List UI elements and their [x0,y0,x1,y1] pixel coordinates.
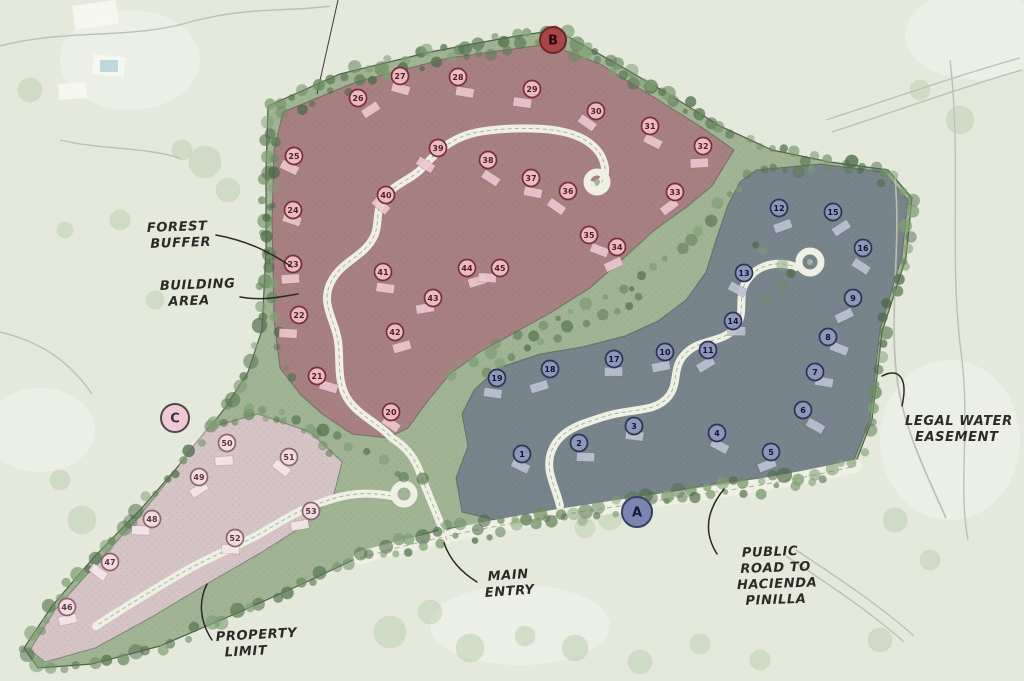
tree [531,518,542,529]
lot-number: 3 [631,422,637,431]
terrain-tree-blob [868,628,892,652]
tree [171,470,179,478]
tree [60,665,68,673]
tree [225,392,240,407]
lot-marker-39: 39 [430,140,447,157]
lot-marker-21: 21 [309,368,326,385]
lot-marker-27: 27 [392,68,409,85]
tree [649,263,657,271]
tree [471,37,484,50]
tree [383,55,391,63]
tree [158,645,169,656]
tree [763,298,771,306]
annotation-text-main-entry: MAINENTRY [483,566,536,600]
tree [232,419,239,426]
tree [246,603,255,612]
tree [788,146,799,157]
tree [739,490,747,498]
tree [288,94,295,101]
lot-number: 35 [583,231,595,240]
tree [472,524,484,536]
lot-marker-38: 38 [480,152,497,169]
tree [327,87,334,94]
lot-marker-48: 48 [144,511,161,528]
tree [756,143,763,150]
lot-number: 40 [380,191,392,200]
tree [230,603,245,618]
tree [89,552,102,565]
tree [454,518,467,531]
lot-marker-47: 47 [102,554,119,571]
lot-number: 24 [287,206,299,215]
lot-marker-30: 30 [588,103,605,120]
tree [417,473,429,485]
lot-marker-11: 11 [700,342,717,359]
tree [591,48,598,55]
tree [767,470,777,480]
lot-marker-3: 3 [626,418,643,435]
tree [758,478,765,485]
tree [262,214,270,222]
marker-b: B [540,27,566,53]
terrain-tree-blob [189,146,221,178]
terrain-tree-blob [946,106,974,134]
tree [864,424,877,437]
lot-marker-1: 1 [514,446,531,463]
tree [522,28,531,37]
lot-marker-7: 7 [807,364,824,381]
neighbor-building [58,82,87,100]
terrain-tree-blob [18,78,42,102]
tree [712,197,724,209]
annotation-line: LEGAL WATER [905,414,1013,429]
lot-marker-43: 43 [425,290,442,307]
terrain-tree-blob [57,222,73,238]
lot-marker-34: 34 [609,239,626,256]
lot-marker-24: 24 [285,202,302,219]
tree [262,415,269,422]
tree [255,301,266,312]
tree [773,483,779,489]
culdesac-island [401,491,407,497]
tree [874,365,884,375]
tree [693,226,703,236]
tree [262,247,277,262]
lot-marker-13: 13 [736,265,753,282]
tree [685,96,696,107]
tree [725,130,734,139]
lot-marker-49: 49 [191,469,208,486]
lot-number: 52 [229,534,240,543]
tree [431,57,442,68]
tree [561,320,573,332]
tree [296,84,308,96]
tree [379,454,390,465]
terrain-tree-blob [910,80,930,100]
site-plan-canvas: 2021222324252627282930313233343536373839… [0,0,1024,681]
lot-number: 6 [800,406,806,415]
lot-number: 38 [482,156,494,165]
tree [287,373,296,382]
tree [19,645,27,653]
lot-number: 42 [389,328,400,337]
tree [270,154,279,163]
tree [568,309,574,315]
lot-number: 33 [669,188,680,197]
tree [45,662,57,674]
tree [326,450,333,457]
tree [296,577,306,587]
tree [309,101,315,107]
lot-number: 27 [394,72,405,81]
tree [876,351,888,363]
tree [452,533,458,539]
terrain-tree-blob [68,506,96,534]
tree [892,286,903,297]
tree [819,475,827,483]
tree [273,593,283,603]
lot-marker-37: 37 [523,170,540,187]
tree [101,655,112,666]
terrain-tree-blob [456,634,484,662]
tree [593,512,600,519]
tree [260,230,272,242]
tree [677,492,687,502]
terrain-tree-blob [515,626,535,646]
tree [475,50,482,57]
tree [309,578,317,586]
lot-number: 34 [611,243,623,252]
tree [317,424,330,437]
lot-number: 49 [193,473,205,482]
lot-number: 5 [768,448,774,457]
lot-marker-18: 18 [542,361,559,378]
tree [776,259,788,271]
tree [363,448,370,455]
tree [220,419,228,427]
tree [822,154,832,164]
neighbor-pool [100,60,118,72]
lot-marker-51: 51 [281,449,298,466]
lot-marker-40: 40 [378,187,395,204]
tree [857,167,864,174]
lot-number: 25 [288,152,300,161]
tree [769,164,777,172]
lot-number: 36 [562,187,574,196]
lot-marker-17: 17 [606,351,623,368]
tree [612,495,621,504]
tree [619,285,628,294]
tree [447,52,458,63]
tree [861,448,869,456]
tree [90,657,102,669]
tree [464,54,470,60]
tree [880,326,893,339]
lot-number: 18 [544,365,556,374]
lot-marker-6: 6 [795,402,812,419]
tree [614,308,621,315]
tree [490,338,501,349]
tree [271,137,281,147]
tree [276,106,289,119]
house-footprint [690,158,708,168]
annotation-line: LIMIT [224,643,268,660]
tree [899,219,913,233]
lot-number: 41 [377,268,389,277]
lot-marker-33: 33 [667,184,684,201]
tree [510,518,522,530]
tree [752,242,759,249]
lot-marker-25: 25 [286,148,303,165]
tree [779,282,787,290]
marker-c: C [161,404,189,432]
tree [380,551,387,558]
tree [141,491,151,501]
tree [729,476,738,485]
tree [24,626,39,641]
tree [420,44,432,56]
terrain-tree-blob [216,178,240,202]
lot-number: 53 [305,507,316,516]
lot-marker-4: 4 [709,425,726,442]
tree [514,37,526,49]
lot-number: 14 [727,317,739,326]
tree [267,278,278,289]
tree [777,468,792,483]
lot-number: 19 [491,374,503,383]
tree [273,416,280,423]
lot-number: 11 [702,346,714,355]
tree [365,65,373,73]
tree [472,537,479,544]
tree [879,339,887,347]
tree [597,309,608,320]
tree [291,415,301,425]
terrain-tree-blob [628,650,652,674]
lot-marker-22: 22 [291,307,308,324]
lot-marker-5: 5 [763,444,780,461]
lot-marker-45: 45 [492,260,509,277]
tree [258,196,266,204]
lot-marker-20: 20 [383,404,400,421]
tree [313,79,325,91]
tree [667,94,675,102]
tree [502,46,512,56]
tree [629,286,635,292]
tree [637,271,646,280]
tree [398,472,409,483]
tree [494,358,505,369]
annotation-line: HACIENDA [737,575,818,593]
tree [689,492,700,503]
lot-marker-41: 41 [375,264,392,281]
house-footprint [513,97,532,108]
tree [577,516,587,526]
tree [524,344,531,351]
tree [627,77,640,90]
lot-number: 37 [525,174,536,183]
tree [354,547,367,560]
tree [268,182,279,193]
tree [808,165,816,173]
lot-number: 30 [590,107,602,116]
tree [696,113,704,121]
lot-marker-50: 50 [219,435,236,452]
tree [404,548,413,557]
marker-c-label: C [170,412,180,427]
tree [769,145,776,152]
tree [340,73,348,81]
lot-number: 17 [608,355,619,364]
lot-marker-35: 35 [581,227,598,244]
tree [877,179,885,187]
tree [43,617,50,624]
annotation-line: MAIN [487,567,529,585]
lot-marker-14: 14 [725,313,742,330]
tree [847,458,857,468]
tree [837,459,845,467]
lot-number: 1 [519,450,525,459]
lot-marker-8: 8 [820,329,837,346]
lot-number: 8 [825,333,831,342]
tree [553,334,562,343]
lot-number: 2 [576,439,582,448]
tree [625,302,633,310]
tree [442,520,453,531]
tree [243,354,258,369]
tree [379,540,393,554]
tree [234,380,247,393]
terrain-tree-blob [690,634,710,654]
tree [205,615,219,629]
tree [787,269,796,278]
annotation-text-forest-buffer: FORESTBUFFER [147,219,212,252]
tree [325,75,335,85]
tree [742,170,751,179]
tree [239,372,248,381]
lot-number: 29 [526,85,538,94]
lot-number: 45 [494,264,506,273]
lot-number: 43 [427,294,438,303]
terrain-tree-blob [750,650,770,670]
tree [263,262,274,273]
marker-a-label: A [632,506,642,521]
annotation-line: BUFFER [150,235,211,252]
lot-marker-31: 31 [642,118,659,135]
tree [906,205,919,218]
tree [782,168,788,174]
tree [244,403,254,413]
annotation-line: EASEMENT [915,430,999,445]
tree [71,661,79,669]
tree [555,316,561,322]
tree [903,244,913,254]
tree [354,74,365,85]
lot-marker-44: 44 [459,260,476,277]
lot-marker-2: 2 [571,435,588,452]
tree [901,262,910,271]
lot-number: 47 [104,558,115,567]
lot-marker-12: 12 [771,200,788,217]
house-footprint [132,526,150,536]
site-plan-map: 2021222324252627282930313233343536373839… [0,0,1024,681]
tree [208,421,218,431]
tree [185,636,192,643]
tree [108,537,116,545]
tree [313,566,327,580]
lot-marker-36: 36 [560,183,577,200]
tree [568,50,581,63]
tree [280,418,287,425]
tree [343,558,355,570]
tree [433,527,443,537]
lot-marker-15: 15 [825,204,842,221]
tree [182,445,195,458]
tree [70,567,85,582]
tree [344,442,353,451]
tree [683,109,688,114]
tree [469,357,479,367]
lot-number: 10 [659,348,671,357]
tree [485,49,497,61]
annotation-line: PUBLIC [742,544,799,561]
tree [591,501,605,515]
tree [419,542,428,551]
tree [713,121,725,133]
tree [318,441,328,451]
annotation-line: ROAD TO [740,560,811,577]
lot-number: 48 [146,515,158,524]
tree [844,165,853,174]
tree [279,409,285,415]
tree [273,343,280,350]
tree [152,491,158,497]
lot-marker-26: 26 [350,90,367,107]
tree [658,87,667,96]
tree [251,342,258,349]
annotation-line: AREA [167,293,210,309]
tree [455,360,461,366]
tree [761,166,769,174]
lot-marker-42: 42 [387,324,404,341]
tree [888,171,899,182]
tree [189,622,200,633]
lot-number: 50 [221,439,233,448]
marker-b-label: B [548,34,558,49]
tree [716,477,729,490]
tree [38,627,46,635]
tree [645,79,657,91]
house-footprint [576,452,594,462]
tree [800,156,811,167]
annotation-line: PINILLA [745,592,806,609]
tree [258,313,267,322]
tree [128,644,143,659]
tree [539,321,549,331]
tree [878,313,888,323]
lot-number: 32 [697,142,708,151]
tree [594,56,601,63]
terrain-tree-blob [374,616,406,648]
lot-number: 9 [850,294,856,303]
tree [198,439,206,447]
tree [117,653,129,665]
tree [487,534,493,540]
tree [368,76,377,85]
lot-number: 13 [738,269,749,278]
lot-marker-10: 10 [657,344,674,361]
house-footprint [279,328,297,338]
